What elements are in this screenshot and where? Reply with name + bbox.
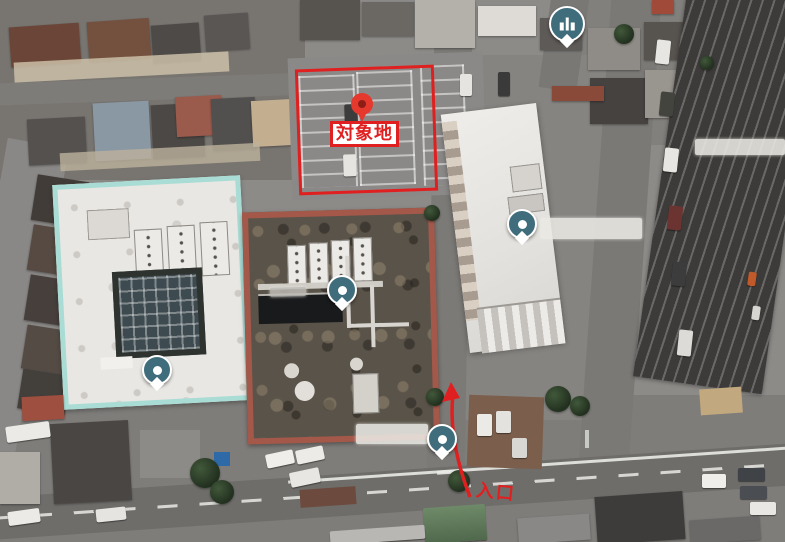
building-roof: [21, 395, 64, 421]
tree: [700, 56, 714, 70]
building-roof: [478, 6, 536, 36]
parked-car: [702, 474, 726, 488]
building-poi-marker-apartment[interactable]: [507, 209, 537, 239]
parked-car: [663, 147, 679, 172]
building-roof: [0, 452, 40, 504]
parked-car: [498, 72, 510, 96]
rooftop-tank: [284, 363, 299, 378]
parked-car: [460, 74, 472, 96]
rooftop-structure: [87, 208, 131, 240]
parked-car: [677, 329, 694, 356]
parked-car: [667, 205, 683, 230]
censored-label: [270, 287, 306, 297]
building-roof: [204, 13, 250, 52]
parked-car: [738, 468, 765, 481]
parked-car: [750, 502, 776, 515]
crosswalk-mark: [585, 430, 589, 448]
dirt-patch: [699, 387, 743, 416]
rooftop-hvac-unit: [353, 237, 373, 281]
building-roof: [362, 2, 414, 36]
tree: [614, 24, 634, 44]
tree: [570, 396, 590, 416]
building-roof: [594, 491, 685, 542]
rooftop-structure: [352, 373, 379, 414]
rooftop-tank: [294, 381, 315, 402]
parked-car: [671, 261, 687, 286]
rooftop-hvac-unit: [199, 221, 230, 276]
rooftop-hvac-unit: [287, 245, 307, 287]
rooftop-hvac-unit: [309, 242, 329, 286]
building-roof: [689, 516, 761, 542]
building-roof: [552, 86, 604, 101]
aerial-map[interactable]: 対象地 入口: [0, 0, 785, 542]
courtyard-skylight: [112, 267, 206, 359]
parked-car: [659, 91, 675, 116]
building-roof: [415, 0, 475, 48]
censored-label: [695, 139, 785, 155]
building-poi-marker-street[interactable]: [427, 424, 457, 454]
city-buildings-icon: [560, 18, 575, 31]
rooftop-pipe: [347, 322, 409, 328]
rooftop-structure: [510, 163, 543, 192]
building-poi-marker-left[interactable]: [142, 355, 172, 385]
building-roof: [300, 0, 360, 40]
parked-car: [740, 486, 767, 499]
tree: [424, 205, 440, 221]
tree: [545, 386, 571, 412]
censored-label: [540, 218, 642, 239]
parked-car: [655, 39, 671, 64]
city-poi-marker[interactable]: [549, 6, 585, 42]
entrance-label: 入口: [475, 476, 517, 506]
truck-green: [423, 504, 487, 542]
tree: [210, 480, 234, 504]
rooftop-pipe: [370, 285, 376, 347]
building-roof: [590, 78, 648, 124]
target-site-label: 対象地: [330, 121, 399, 147]
rooftop-tank: [350, 357, 363, 370]
pin-head-icon: [351, 93, 373, 115]
building-poi-marker-center[interactable]: [327, 275, 357, 305]
rooftop-structure: [100, 356, 133, 370]
building-roof: [517, 514, 591, 542]
building-roof: [652, 0, 674, 14]
building-roof: [50, 420, 132, 504]
